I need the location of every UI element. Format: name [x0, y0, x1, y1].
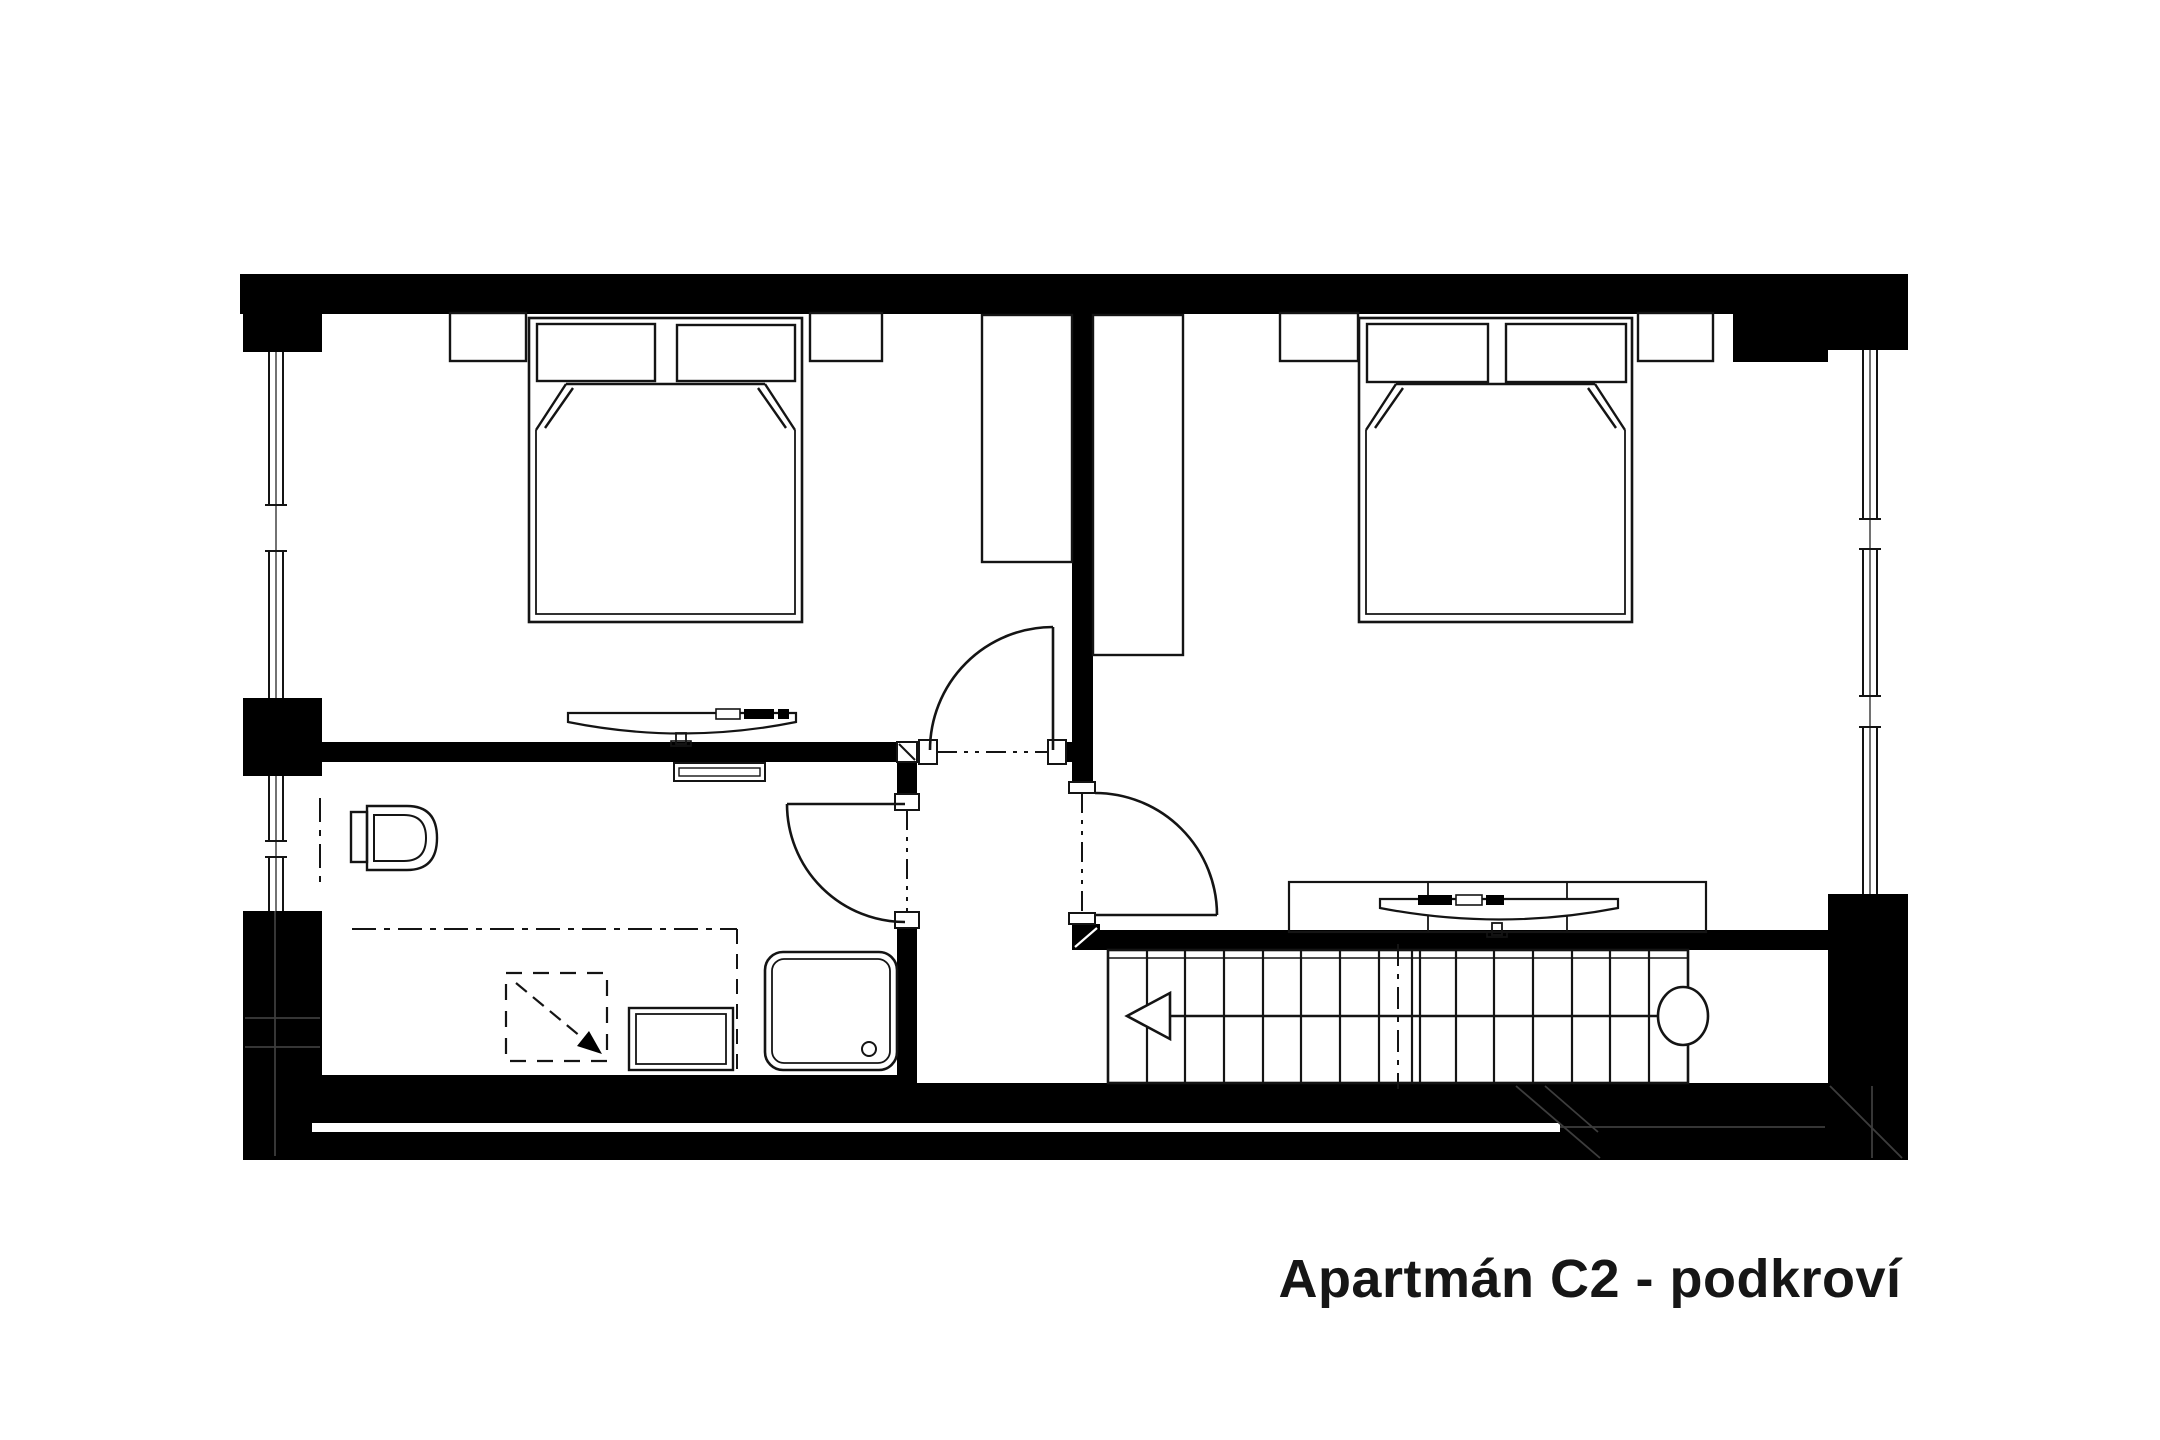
shower-tray — [765, 952, 897, 1070]
bathroom — [320, 763, 897, 1075]
wall-bathroom-north — [322, 742, 897, 762]
jamb — [895, 912, 919, 928]
wardrobe — [982, 315, 1072, 562]
wall-bottom-right — [917, 1083, 1828, 1160]
toilet-bowl-inner — [374, 815, 426, 861]
sheet-fold-right — [1588, 384, 1625, 430]
washer-inner — [636, 1014, 726, 1064]
opening-lines — [907, 752, 1082, 913]
nightstand — [1280, 313, 1358, 361]
chair-mark — [778, 709, 789, 719]
bedroom-right — [1093, 313, 1713, 937]
jamb — [1069, 913, 1095, 924]
wall-bottom-left — [243, 1075, 917, 1160]
jamb — [895, 794, 919, 810]
radiator-inner — [679, 768, 760, 776]
jamb — [1048, 740, 1066, 764]
pillow — [677, 325, 795, 381]
shower — [765, 952, 897, 1070]
plan-title: Apartmán C2 - podkroví — [1260, 1248, 1920, 1310]
radiator — [674, 763, 765, 781]
shower-tray-inner — [772, 959, 890, 1063]
wall-pier-top-right — [1733, 313, 1828, 362]
desk-with-chair — [1289, 882, 1706, 937]
window-cutout-right — [1828, 350, 1908, 894]
washer-outline — [629, 1008, 733, 1070]
chair-mark — [716, 709, 740, 719]
wall-top — [240, 274, 1908, 314]
jamb — [919, 740, 937, 764]
staircase — [1108, 944, 1708, 1089]
floorplan-drawing — [0, 0, 2160, 1440]
pillow — [1367, 324, 1488, 382]
desk-chair — [568, 709, 796, 746]
sheet-fold-left — [536, 384, 573, 430]
slope-indicator — [506, 973, 607, 1061]
doors — [787, 627, 1217, 947]
wardrobe — [1093, 315, 1183, 655]
door-arc-bedroom-right — [1095, 793, 1217, 915]
nightstand — [1638, 313, 1713, 361]
double-bed — [1359, 318, 1632, 622]
toilet — [351, 806, 437, 870]
double-bed — [529, 318, 802, 622]
radiator-outline — [674, 763, 765, 781]
slope-arrow-shaft — [516, 983, 592, 1046]
door-jambs — [895, 740, 1095, 928]
mattress-inner — [1366, 430, 1625, 614]
shower-drain — [862, 1042, 876, 1056]
chair-mark — [744, 709, 774, 719]
bedroom-left — [450, 313, 1072, 746]
pillow — [1506, 324, 1626, 382]
sheet-fold-left — [1366, 384, 1403, 430]
nightstand — [810, 313, 882, 361]
drawing-root — [240, 274, 1908, 1160]
slope-arrow-head — [577, 1031, 602, 1054]
bed-frame — [1359, 318, 1632, 622]
wall-hall-west-lower — [897, 928, 917, 1083]
wall-bedroom-divider — [1072, 313, 1093, 782]
nightstand — [450, 313, 526, 361]
sheet-fold-right — [758, 384, 795, 430]
mattress-inner — [536, 430, 795, 614]
pillow — [537, 324, 655, 381]
wall-stub-hall — [1066, 742, 1093, 762]
door-arc-bathroom — [787, 804, 905, 922]
door-arc-bedroom-left — [930, 627, 1053, 750]
toilet-cistern — [351, 812, 367, 862]
chair-mark — [1418, 895, 1452, 905]
door-swings — [787, 627, 1217, 922]
stairs-start-circle — [1658, 987, 1708, 1045]
wall-hall-west-upper — [897, 762, 917, 794]
chair-mark — [1486, 895, 1504, 905]
washing-machine — [629, 1008, 733, 1070]
chair-mark — [1456, 895, 1482, 905]
floorplan-page: Apartmán C2 - podkroví — [0, 0, 2160, 1440]
wall-gap-line — [312, 1123, 1560, 1132]
jamb — [1069, 782, 1095, 793]
bed-frame — [529, 318, 802, 622]
